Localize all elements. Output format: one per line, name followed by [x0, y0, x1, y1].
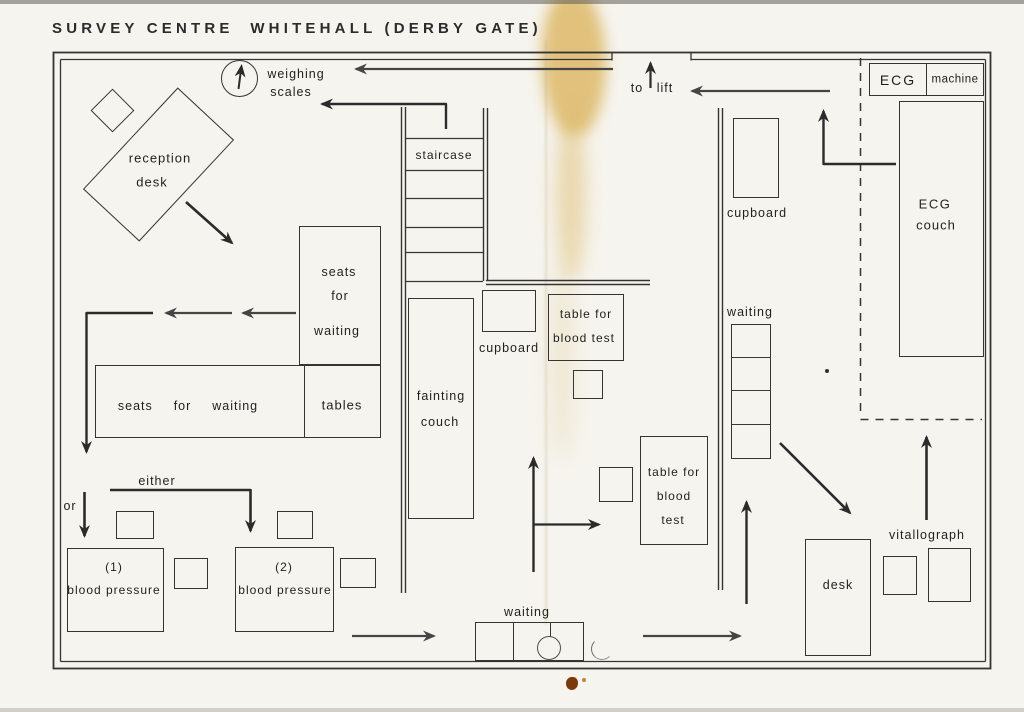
bp1-chair-top	[116, 511, 154, 539]
waiting-bottom-bench	[475, 622, 584, 661]
blood-pressure-2-label: blood pressure	[238, 584, 331, 596]
to-lift-label: lift	[657, 82, 674, 95]
blood-test-1-chair	[573, 370, 603, 399]
bp2-chair-top	[277, 511, 313, 539]
vitallograph-label: vitallograph	[889, 529, 965, 542]
seats-for-waiting-label: seats for waiting	[118, 400, 258, 413]
chair-divider	[732, 390, 770, 391]
waiting-right-label: waiting	[727, 306, 773, 319]
desk	[805, 539, 871, 656]
ecg-couch-label: couch	[916, 219, 956, 232]
blood-pressure-2-label: (2)	[275, 561, 293, 573]
seats-label: waiting	[314, 325, 360, 338]
reception-desk-label: desk	[136, 176, 167, 189]
blood-test-2-label: test	[661, 514, 684, 526]
blood-test-2-label: blood	[657, 490, 691, 502]
seats-label: seats	[322, 266, 357, 279]
fainting-couch	[408, 298, 474, 519]
staircase-label: staircase	[415, 149, 472, 161]
arrow-from-staircase-left	[322, 104, 446, 129]
reception-desk-label: reception	[129, 152, 191, 165]
arrow-waiting-to-desk-diagonal	[780, 443, 850, 513]
page-title: SURVEY CENTRE WHITEHALL (DERBY GATE)	[52, 20, 542, 37]
blood-test-1-label: blood test	[553, 332, 615, 344]
cupboard-top-right-label: cupboard	[727, 207, 787, 220]
seats-label: for	[331, 290, 349, 303]
fainting-couch-label: couch	[421, 416, 459, 429]
ecg-couch-label: ECG	[919, 198, 952, 211]
cupboard-middle-label: cupboard	[479, 342, 539, 355]
weighing-scales-label: weighing	[267, 68, 324, 81]
weighing-scales-label: scales	[270, 86, 311, 99]
cupboard-middle	[482, 290, 536, 332]
stool-faded	[591, 638, 613, 660]
weighing-scales-symbol	[221, 60, 258, 97]
or-label: or	[63, 500, 76, 513]
blood-test-table-1	[548, 294, 624, 361]
vitallograph-machine	[928, 548, 971, 602]
tables-label: tables	[322, 399, 363, 412]
blood-test-2-chair	[599, 467, 633, 502]
bp2-chair-side	[340, 558, 376, 588]
ecg-machine-label: machine	[932, 74, 979, 86]
vitallograph-chair	[883, 556, 917, 595]
ecg-box-label: ECG	[880, 73, 916, 87]
blood-test-1-label: table for	[560, 308, 612, 320]
blood-pressure-1-label: blood pressure	[67, 584, 160, 596]
arrow-reception-to-seats	[186, 202, 232, 243]
waiting-right-chairs	[731, 324, 771, 459]
chair-divider	[732, 424, 770, 425]
bench-divider	[513, 623, 514, 660]
bp1-chair-side	[174, 558, 208, 589]
fainting-couch-label: fainting	[417, 390, 465, 403]
cupboard-top-right	[733, 118, 779, 198]
stool	[537, 636, 561, 660]
to-lift-label: to	[631, 82, 643, 95]
either-label: either	[138, 475, 175, 488]
chair-divider	[732, 357, 770, 358]
tables-divider	[304, 366, 305, 437]
desk-label: desk	[823, 579, 853, 592]
blood-test-2-label: table for	[648, 466, 700, 478]
waiting-bottom-label: waiting	[504, 606, 550, 619]
blood-pressure-1-label: (1)	[105, 561, 123, 573]
